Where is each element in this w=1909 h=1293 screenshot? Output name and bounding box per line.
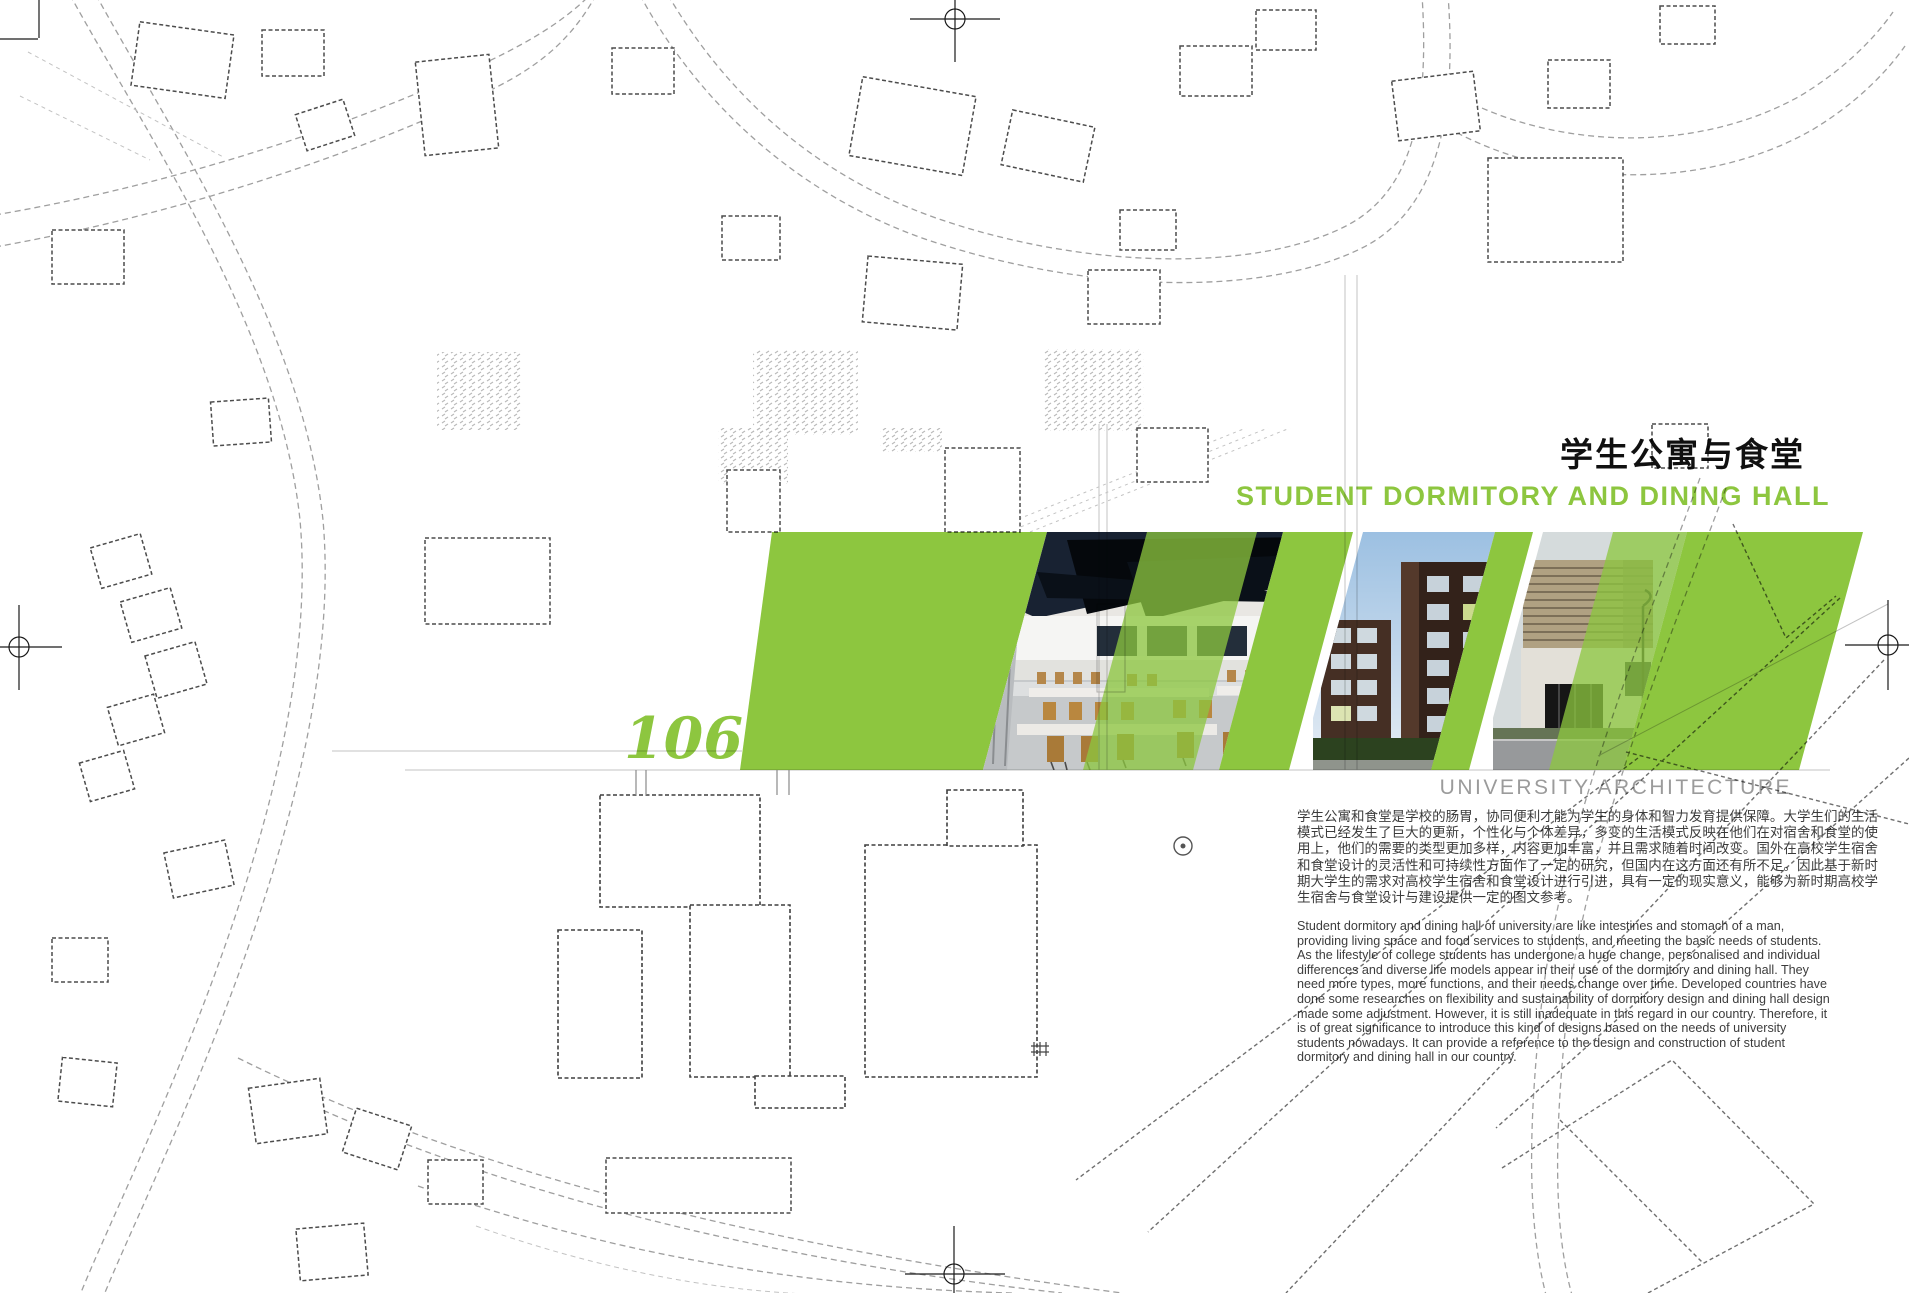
page-number: 106	[624, 710, 743, 767]
book-page: 106 学生公寓与食堂 STUDENT DORMITORY AND DINING…	[0, 0, 1909, 1293]
corner-trim-mark	[0, 0, 39, 39]
page-title-english: STUDENT DORMITORY AND DINING HALL	[1236, 481, 1830, 512]
photo-band	[0, 532, 1909, 770]
campus-complex	[558, 790, 1037, 1108]
page-title-chinese: 学生公寓与食堂	[1560, 428, 1805, 476]
intro-paragraph-english: Student dormitory and dining hall of uni…	[1297, 919, 1837, 1065]
category-label: UNIVERSITY ARCHITECTURE	[1440, 776, 1792, 800]
flag-symbol	[1174, 837, 1192, 855]
registration-target-top	[910, 0, 1000, 62]
complex-connectors	[636, 770, 1049, 1056]
intro-paragraph-chinese: 学生公寓和食堂是学校的肠胃，协同便利才能为学生的身体和智力发育提供保障。大学生们…	[1297, 809, 1878, 906]
registration-target-bottom	[905, 1226, 1005, 1293]
green-band-segment-1	[0, 532, 1100, 770]
hatch-areas	[437, 349, 1144, 484]
